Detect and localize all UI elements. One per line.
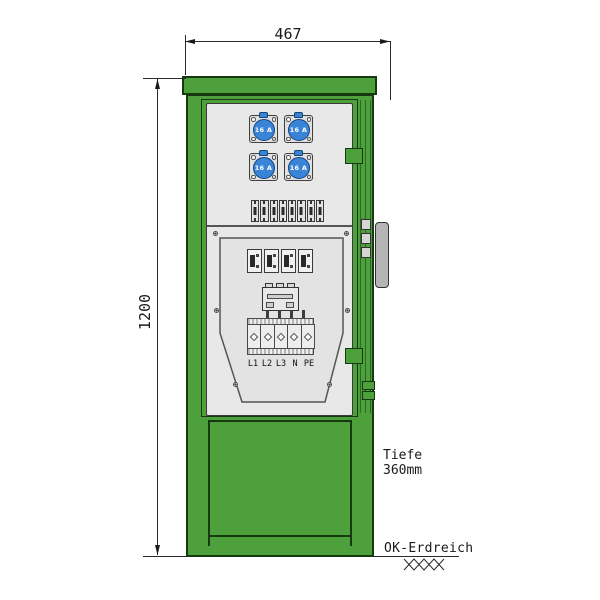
door-handle — [375, 222, 389, 288]
cee-socket: 16 A — [284, 153, 313, 181]
base-corner-mark — [208, 536, 210, 546]
door-lock-element — [361, 219, 371, 230]
socket-lid-tab — [294, 150, 303, 156]
terminal-clamp-icon — [263, 332, 271, 340]
mcb-module — [251, 200, 259, 222]
depth-label-line2: 360mm — [383, 463, 422, 478]
terminal-label-n: N — [288, 359, 302, 369]
door-lock-element — [361, 247, 371, 258]
busbar-foot — [266, 302, 274, 308]
terminal-labels: L1 L2 L3 N PE — [246, 359, 316, 369]
breaker-toggle — [300, 207, 303, 215]
panel-screw-icon — [344, 231, 349, 236]
depth-dimension-label: Tiefe 360mm — [383, 448, 422, 478]
terminal-cell — [287, 324, 301, 349]
screw-icon — [286, 155, 291, 160]
terminal-label-pe: PE — [302, 359, 316, 369]
mcb-module — [279, 200, 287, 222]
screw-icon — [251, 155, 256, 160]
cabinet-roof-cap — [182, 76, 377, 95]
technical-drawing-canvas: 16 A 16 A 16 A 16 A — [0, 0, 600, 600]
mcb-module — [288, 200, 296, 222]
panel-screw-icon — [327, 382, 332, 387]
breaker-toggle — [281, 207, 284, 215]
busbar-tab — [276, 283, 284, 288]
panel-screw-icon — [345, 308, 350, 313]
panel-divider-line — [207, 225, 352, 227]
terminal-label-l2: L2 — [260, 359, 274, 369]
screw-icon — [272, 155, 277, 160]
screw-icon — [307, 155, 312, 160]
terminal-cells — [247, 324, 314, 349]
socket-rating-label: 16 A — [290, 164, 308, 172]
door-latch-lower — [362, 391, 375, 400]
terminal-clamp-icon — [277, 332, 285, 340]
panel-screw-icon — [213, 231, 218, 236]
socket-rating-label: 16 A — [255, 164, 273, 172]
fuse-module — [298, 249, 313, 273]
door-latch-lower — [362, 381, 375, 390]
terminal-cell — [260, 324, 274, 349]
terminal-cell — [247, 324, 261, 349]
socket-face: 16 A — [253, 157, 275, 179]
height-dimension-label: 1200 — [136, 282, 152, 342]
ground-level-label: OK-Erdreich — [384, 541, 473, 556]
fuse-module — [264, 249, 279, 273]
mcb-module — [307, 200, 315, 222]
fuse-module — [281, 249, 296, 273]
breaker-toggle — [291, 207, 294, 215]
screw-icon — [286, 117, 291, 122]
breaker-toggle — [263, 207, 266, 215]
socket-face: 16 A — [288, 157, 310, 179]
socket-lid-tab — [259, 112, 268, 118]
mcb-module — [297, 200, 305, 222]
socket-rating-label: 16 A — [290, 126, 308, 134]
terminal-cell — [301, 324, 315, 349]
mcb-module — [270, 200, 278, 222]
panel-screw-icon — [214, 308, 219, 313]
terminal-label-l3: L3 — [274, 359, 288, 369]
fuse-module — [247, 249, 262, 273]
screw-icon — [251, 117, 256, 122]
depth-label-line1: Tiefe — [383, 448, 422, 463]
terminal-label-l1: L1 — [246, 359, 260, 369]
width-dimension-label: 467 — [262, 25, 314, 43]
socket-face: 16 A — [288, 119, 310, 141]
terminal-clamp-icon — [290, 332, 298, 340]
terminal-block-assembly — [247, 318, 314, 357]
door-hinge-top — [345, 148, 363, 164]
breaker-toggle — [272, 207, 275, 215]
cee-socket: 16 A — [284, 115, 313, 143]
breaker-toggle — [318, 207, 321, 215]
terminal-cell — [274, 324, 288, 349]
panel-screw-icon — [233, 382, 238, 387]
busbar-bridge — [267, 294, 293, 299]
socket-lid-tab — [259, 150, 268, 156]
busbar-tab — [287, 283, 295, 288]
terminal-strip — [247, 348, 314, 355]
fuse-module-row — [247, 249, 313, 273]
mcb-module — [260, 200, 268, 222]
cee-socket: 16 A — [249, 153, 278, 181]
mcb-breaker-row — [251, 200, 324, 222]
socket-lid-tab — [294, 112, 303, 118]
terminal-clamp-icon — [304, 332, 312, 340]
breaker-toggle — [309, 207, 312, 215]
socket-face: 16 A — [253, 119, 275, 141]
socket-rating-label: 16 A — [255, 126, 273, 134]
busbar-tab — [265, 283, 273, 288]
door-lock-element — [361, 233, 371, 244]
breaker-toggle — [254, 207, 257, 215]
cee-socket: 16 A — [249, 115, 278, 143]
base-corner-mark — [350, 536, 352, 546]
screw-icon — [307, 117, 312, 122]
busbar-block — [262, 287, 299, 311]
screw-icon — [272, 117, 277, 122]
terminal-clamp-icon — [250, 332, 258, 340]
mcb-module — [316, 200, 324, 222]
lower-door-panel — [208, 420, 352, 537]
busbar-foot — [286, 302, 294, 308]
